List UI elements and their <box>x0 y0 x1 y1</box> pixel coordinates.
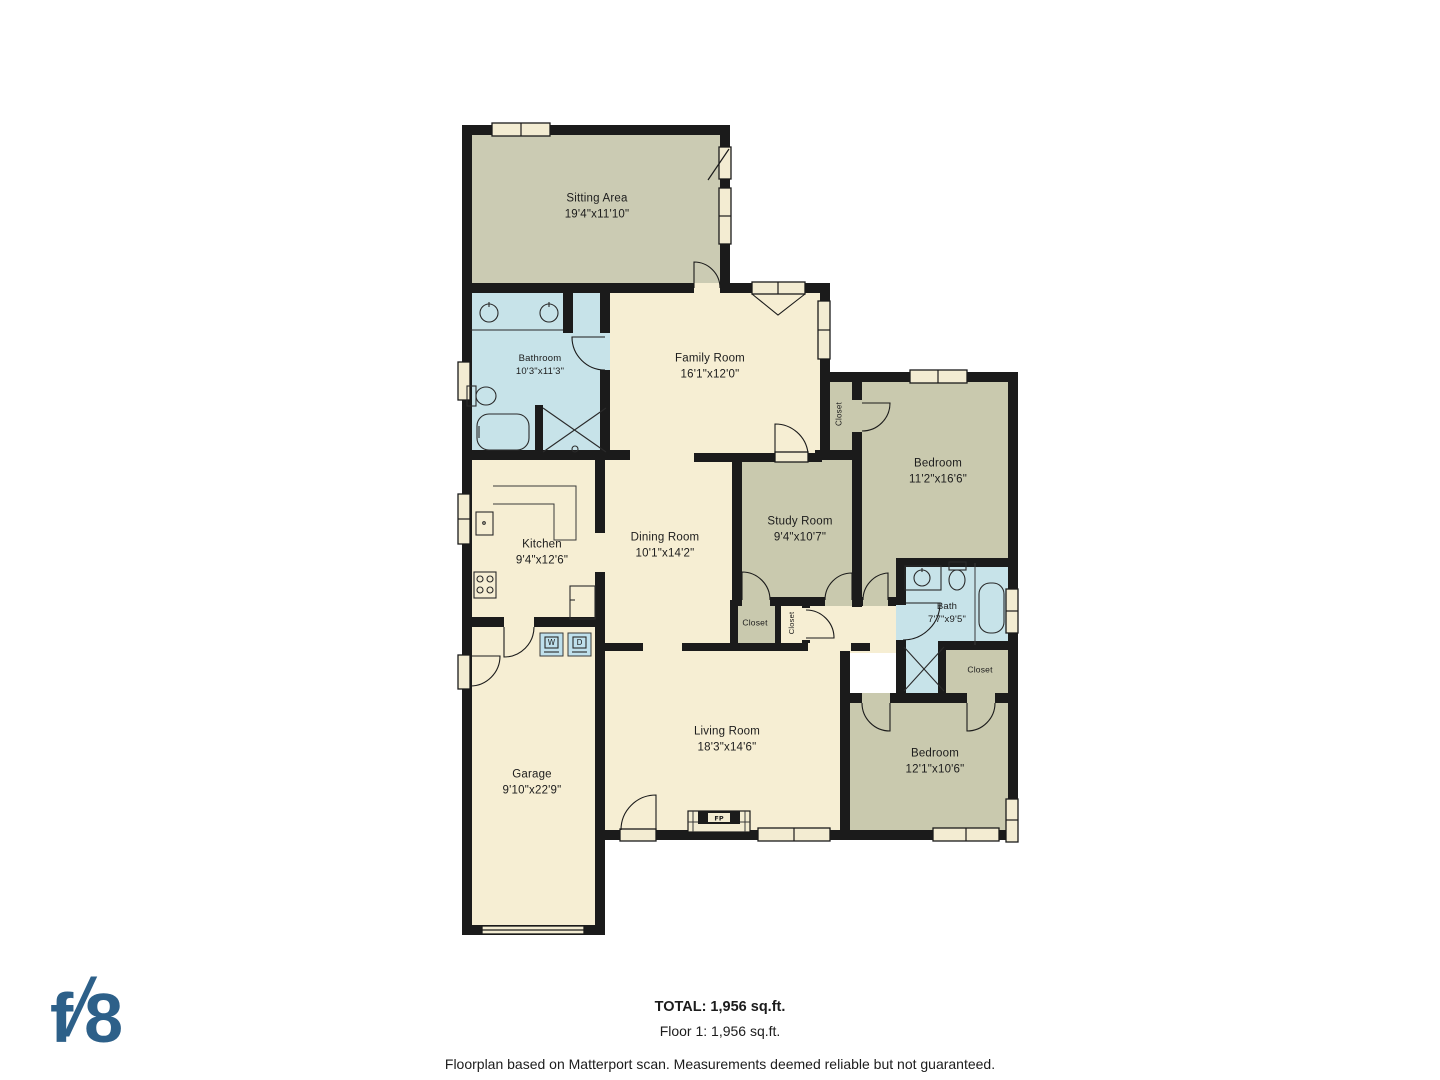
window-bedroom2-right <box>1006 799 1018 842</box>
room-label-closet-b: Closet <box>742 617 767 628</box>
room-label-sitting-area: Sitting Area 19'4"x11'10" <box>565 191 630 222</box>
room-label-closet-a: Closet <box>835 402 846 426</box>
study-door-leaf <box>775 452 808 462</box>
room-dims: 12'1"x10'6" <box>906 762 965 778</box>
room-label-family-room: Family Room 16'1"x12'0" <box>675 351 745 382</box>
window-bathroom-left <box>458 362 470 400</box>
room-label-dining-room: Dining Room 10'1"x14'2" <box>631 530 700 561</box>
room-name: Family Room <box>675 351 745 367</box>
washer-label: W <box>548 638 556 647</box>
room-name: Kitchen <box>516 537 568 553</box>
room-label-bedroom-2: Bedroom 12'1"x10'6" <box>906 746 965 777</box>
total-area-text: TOTAL: 1,956 sq.ft. <box>0 999 1440 1015</box>
room-name: Dining Room <box>631 530 700 546</box>
window-living-bottom-left <box>758 828 830 841</box>
garage-side-door <box>458 655 470 689</box>
room-label-bathroom: Bathroom 10'3"x11'3" <box>516 353 564 379</box>
window-family-right <box>818 301 830 359</box>
room-name: Living Room <box>694 724 760 740</box>
room-dims: 9'10"x22'9" <box>503 783 562 799</box>
disclaimer-text: Floorplan based on Matterport scan. Meas… <box>0 1056 1440 1072</box>
room-name: Closet <box>835 402 844 426</box>
room-name: Closet <box>967 664 992 675</box>
fireplace-label: FP <box>714 815 723 823</box>
front-door-leaf <box>620 829 656 841</box>
room-label-bath: Bath 7'7"x9'5" <box>928 601 966 627</box>
room-label-closet-d: Closet <box>967 664 992 675</box>
room-label-kitchen: Kitchen 9'4"x12'6" <box>516 537 568 568</box>
f8-logo: f/8 <box>50 978 123 1058</box>
room-label-bedroom-1: Bedroom 11'2"x16'6" <box>909 456 967 487</box>
room-name: Bathroom <box>516 353 564 366</box>
fireplace: FP <box>688 811 750 832</box>
window-bedroom1-top <box>910 370 967 383</box>
window-living-bottom-right <box>933 828 999 841</box>
window-kitchen-left <box>458 494 470 544</box>
room-dims: 9'4"x12'6" <box>516 553 568 569</box>
window-sitting-top <box>492 123 550 136</box>
room-label-study-room: Study Room 9'4"x10'7" <box>767 514 832 545</box>
room-name: Bath <box>928 601 966 614</box>
floorplan-canvas: W D FP <box>0 0 1440 1080</box>
room-dims: 16'1"x12'0" <box>675 367 745 383</box>
room-label-garage: Garage 9'10"x22'9" <box>503 767 562 798</box>
room-name: Closet <box>787 612 796 634</box>
room-name: Bedroom <box>906 746 965 762</box>
room-name: Sitting Area <box>565 191 630 207</box>
room-dims: 10'3"x11'3" <box>516 366 564 379</box>
room-name: Closet <box>742 617 767 628</box>
room-dims: 9'4"x10'7" <box>767 530 832 546</box>
dryer-label: D <box>577 638 583 647</box>
room-dims: 7'7"x9'5" <box>928 614 966 627</box>
room-name: Study Room <box>767 514 832 530</box>
window-bath-right <box>1006 589 1018 633</box>
room-dims: 11'2"x16'6" <box>909 472 967 488</box>
room-dims: 18'3"x14'6" <box>694 740 760 756</box>
room-label-closet-c: Closet <box>787 612 797 634</box>
garage-door <box>482 926 584 934</box>
window-sitting-right <box>719 188 731 244</box>
room-name: Garage <box>503 767 562 783</box>
floor-area-text: Floor 1: 1,956 sq.ft. <box>0 1023 1440 1039</box>
room-name: Bedroom <box>909 456 967 472</box>
room-dims: 19'4"x11'10" <box>565 207 630 223</box>
room-dims: 10'1"x14'2" <box>631 546 700 562</box>
room-label-living-room: Living Room 18'3"x14'6" <box>694 724 760 755</box>
